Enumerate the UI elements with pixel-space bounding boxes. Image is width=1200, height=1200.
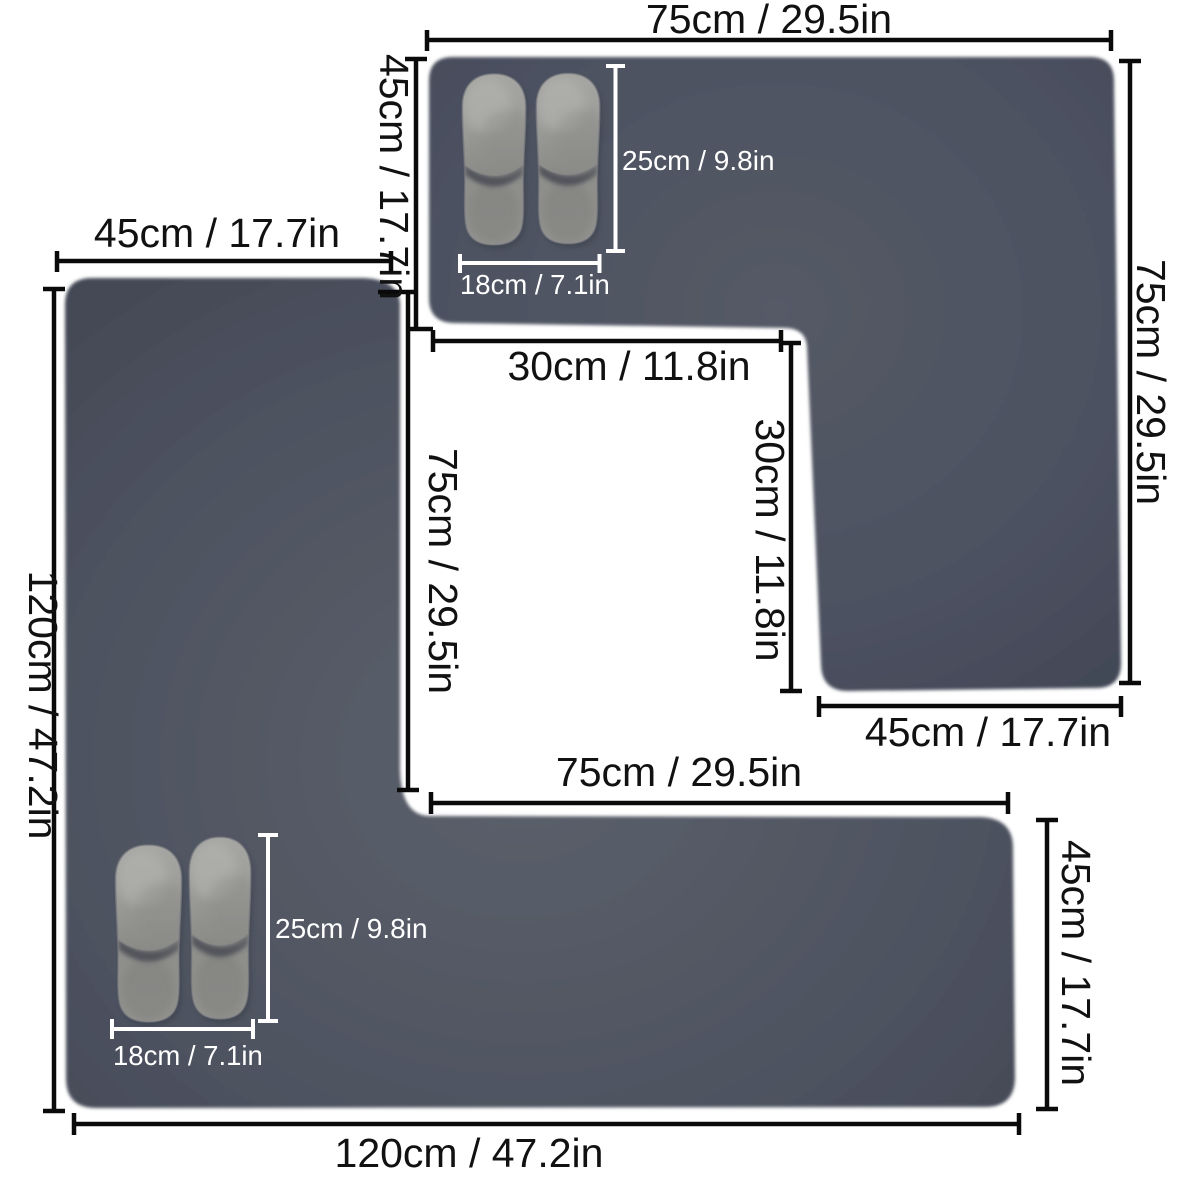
svg-text:120cm / 47.2in: 120cm / 47.2in — [335, 1130, 604, 1176]
svg-text:45cm / 17.7in: 45cm / 17.7in — [94, 210, 340, 256]
svg-text:18cm / 7.1in: 18cm / 7.1in — [113, 1040, 263, 1071]
svg-text:75cm / 29.5in: 75cm / 29.5in — [556, 749, 802, 795]
svg-text:120cm / 47.2in: 120cm / 47.2in — [20, 571, 66, 840]
svg-text:25cm / 9.8in: 25cm / 9.8in — [275, 913, 428, 944]
svg-text:45cm / 17.7in: 45cm / 17.7in — [865, 709, 1111, 755]
svg-text:45cm / 17.7in: 45cm / 17.7in — [1053, 840, 1099, 1086]
svg-text:75cm / 29.5in: 75cm / 29.5in — [420, 448, 466, 694]
svg-text:75cm / 29.5in: 75cm / 29.5in — [646, 0, 892, 42]
svg-text:30cm / 11.8in: 30cm / 11.8in — [747, 418, 793, 661]
svg-text:75cm / 29.5in: 75cm / 29.5in — [1128, 259, 1174, 505]
svg-text:30cm / 11.8in: 30cm / 11.8in — [507, 343, 750, 389]
svg-text:18cm / 7.1in: 18cm / 7.1in — [460, 269, 610, 300]
svg-text:25cm / 9.8in: 25cm / 9.8in — [622, 145, 775, 176]
